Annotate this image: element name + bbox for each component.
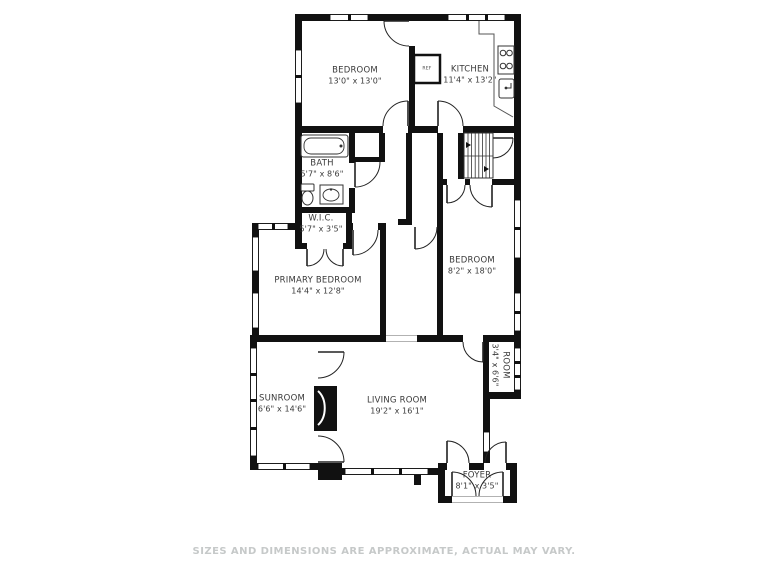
floor-plan-drawing xyxy=(0,0,768,576)
bathroom-sink-icon xyxy=(320,185,343,204)
disclaimer-text: SIZES AND DIMENSIONS ARE APPROXIMATE, AC… xyxy=(0,546,768,557)
stove-icon xyxy=(498,46,514,74)
floor-plan-image: BEDROOM13'0" x 13'0" KITCHEN11'4" x 13'2… xyxy=(0,0,768,576)
walls xyxy=(250,14,521,503)
bathtub-icon xyxy=(301,135,348,157)
refrigerator xyxy=(414,55,440,83)
kitchen-sink-icon xyxy=(499,79,514,98)
fireplace xyxy=(314,386,337,431)
staircase xyxy=(464,133,493,178)
toilet-icon xyxy=(301,184,314,205)
